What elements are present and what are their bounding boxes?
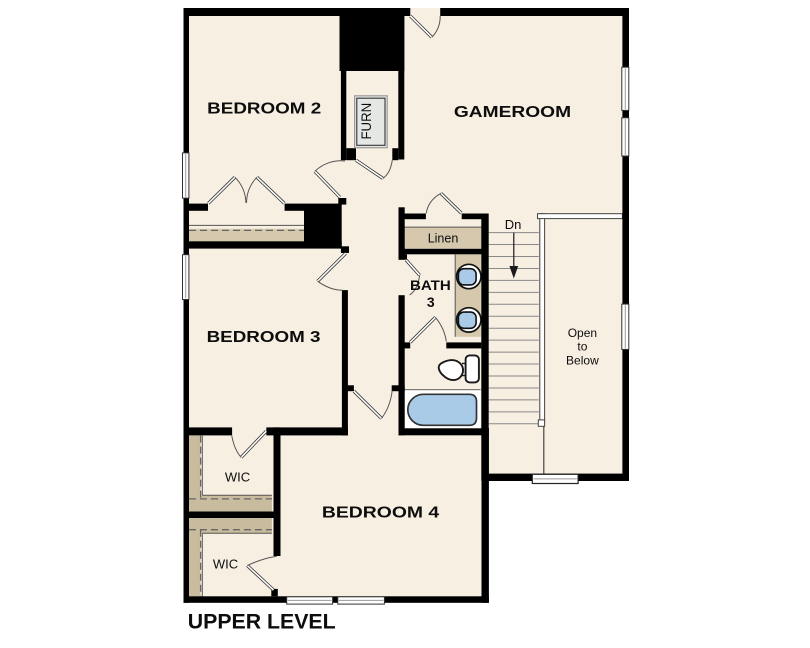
svg-text:to: to: [577, 340, 587, 354]
svg-text:BEDROOM 3: BEDROOM 3: [207, 329, 321, 346]
svg-text:BEDROOM 2: BEDROOM 2: [207, 101, 321, 118]
svg-text:FURN: FURN: [359, 103, 374, 140]
svg-text:BEDROOM 4: BEDROOM 4: [322, 505, 439, 522]
svg-text:WIC: WIC: [213, 556, 238, 571]
svg-text:3: 3: [427, 294, 435, 310]
svg-text:Linen: Linen: [428, 232, 459, 246]
svg-text:BATH: BATH: [410, 277, 451, 293]
svg-text:GAMEROOM: GAMEROOM: [454, 104, 571, 121]
svg-text:UPPER LEVEL: UPPER LEVEL: [188, 609, 336, 633]
svg-text:Open: Open: [568, 326, 597, 340]
svg-text:Below: Below: [566, 353, 599, 367]
svg-text:Dn: Dn: [505, 217, 522, 232]
svg-text:WIC: WIC: [225, 470, 250, 485]
